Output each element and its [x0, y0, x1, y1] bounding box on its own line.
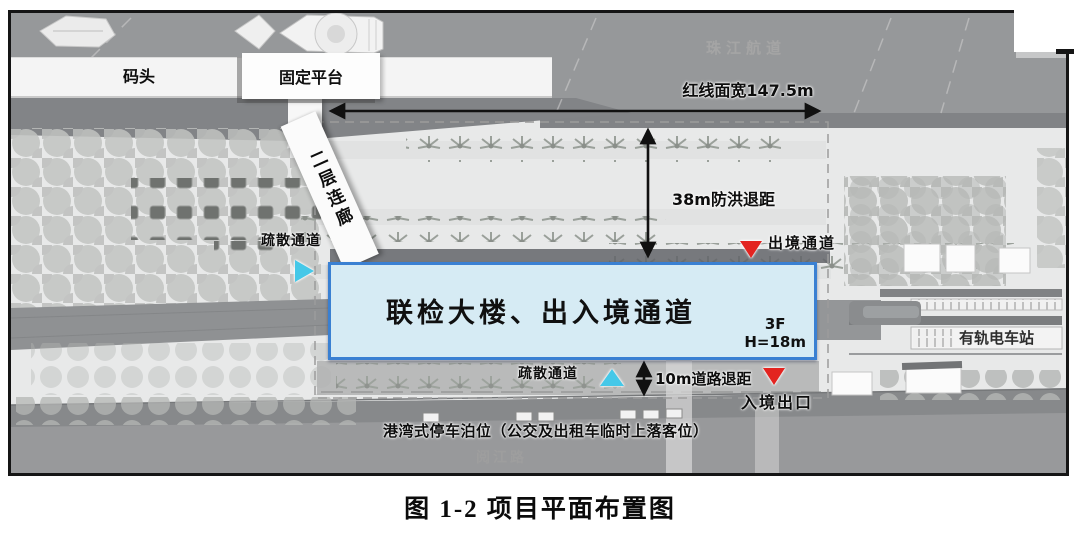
fixed-platform-label: 固定平台 [279, 64, 343, 88]
tram-station-label: 有轨电车站 [959, 330, 1034, 347]
fixed-platform-box: 固定平台 [242, 53, 380, 99]
bus-bay-label: 港湾式停车泊位（公交及出租车临时上落客位） [383, 423, 709, 440]
evacuation-bottom-label: 疏散通道 [518, 367, 578, 382]
figure-caption: 图 1-2 项目平面布置图 [0, 489, 1080, 525]
building-floors-label: 3F [744, 315, 806, 333]
flood-setback-label: 38m防洪退距 [672, 191, 775, 209]
figure-page: 码头 固定平台 二层连廊 珠江航道 红线面宽147.5m 38m防洪退距 出境通… [0, 0, 1080, 542]
building-height-label: H=18m [744, 333, 806, 351]
exit-channel-marker-icon [740, 241, 762, 258]
exit-channel-label: 出境通道 [768, 235, 836, 252]
evacuation-left-marker-icon [295, 260, 314, 282]
waterway-label: 珠江航道 [706, 40, 786, 57]
entry-exit-marker-icon [763, 368, 785, 385]
building-spec: 3F H=18m [744, 315, 806, 351]
main-building-box: 联检大楼、出入境通道 3F H=18m [328, 262, 817, 360]
plan-frame: 码头 固定平台 二层连廊 珠江航道 红线面宽147.5m 38m防洪退距 出境通… [8, 10, 1069, 476]
road-name-label: 阅江路 [476, 451, 527, 466]
frame-corner-notch [1014, 0, 1080, 52]
frame-corner-step [1056, 49, 1074, 54]
evacuation-left-label: 疏散通道 [261, 234, 321, 249]
dock-label: 码头 [123, 68, 155, 86]
evacuation-bottom-marker-icon [600, 369, 624, 386]
road-setback-label: 10m道路退距 [655, 371, 752, 388]
red-line-width-label: 红线面宽147.5m [663, 82, 833, 100]
entry-exit-label: 入境出口 [741, 394, 813, 412]
main-building-label: 联检大楼、出入境通道 [386, 291, 696, 330]
